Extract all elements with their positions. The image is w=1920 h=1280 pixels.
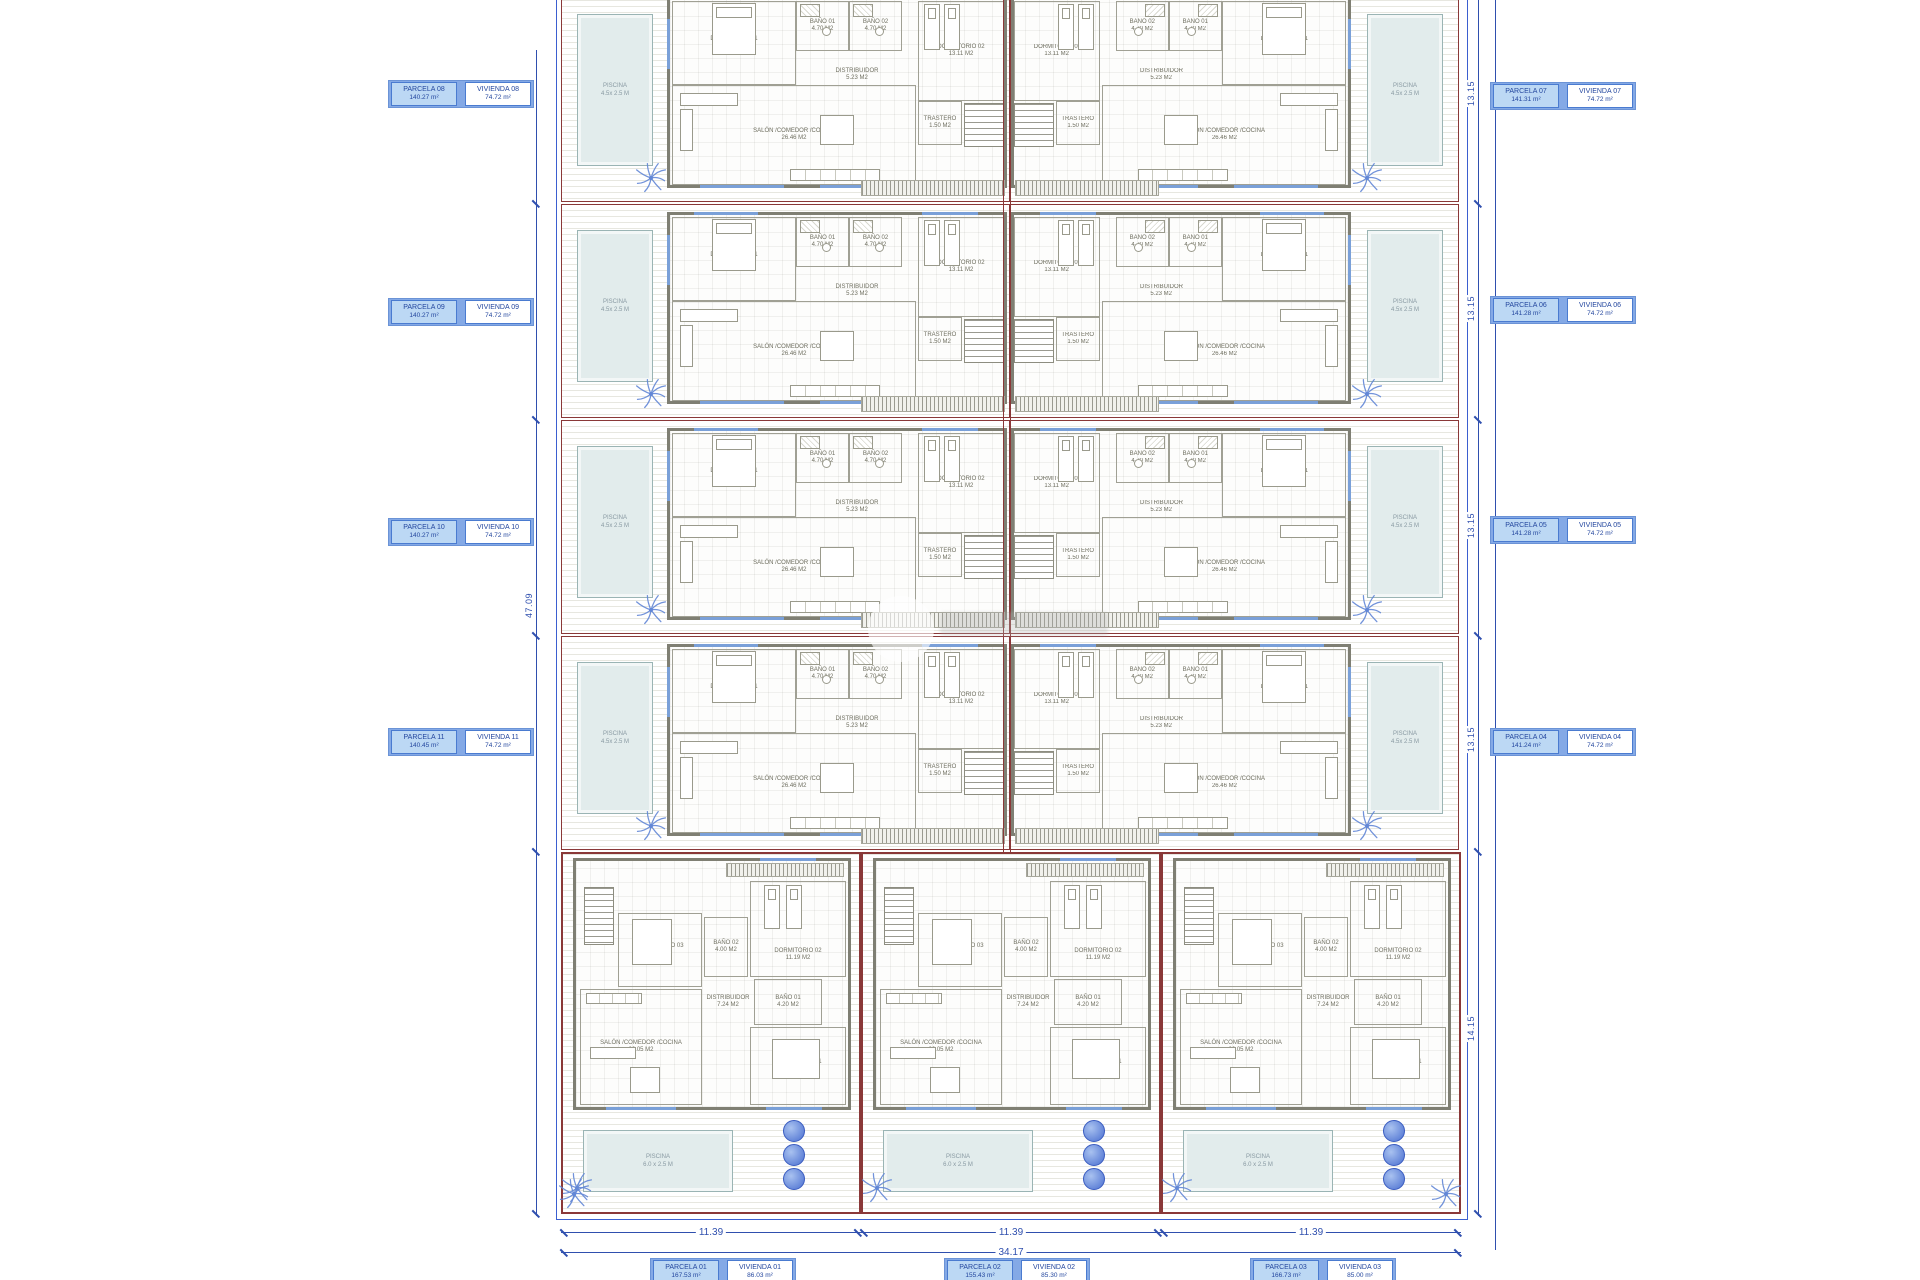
parcela-box: PARCELA 10 140.27 m² xyxy=(391,520,457,544)
room-bano-02: BAÑO 02 4.00 M2 xyxy=(1004,917,1048,977)
tree-icon xyxy=(783,1144,805,1166)
toilet xyxy=(875,459,884,468)
room-distribuidor: DISTRIBUIDOR 7.24 M2 xyxy=(1304,979,1352,1025)
parcel-label-block: PARCELA 04 141.24 m² VIVIENDA 04 74.72 m… xyxy=(1490,728,1636,756)
house-unit: DORMITORIO 01 11.72 M2 BAÑO 01 4.70 M2 B… xyxy=(1011,644,1351,836)
pool-label: PISCINA xyxy=(1246,1153,1270,1161)
pool: PISCINA 4.5x 2.5 M xyxy=(577,230,653,382)
furniture-sofa xyxy=(1325,541,1338,583)
window xyxy=(906,1107,976,1110)
window xyxy=(700,185,784,188)
dimension-label: 11.39 xyxy=(696,1227,726,1238)
window xyxy=(1066,1107,1122,1110)
room-trastero: TRASTERO 1.50 M2 xyxy=(918,101,962,145)
pool-size-label: 4.5x 2.5 M xyxy=(601,738,629,746)
room-trastero: TRASTERO 1.50 M2 xyxy=(1056,533,1100,577)
furniture-sofa xyxy=(1325,757,1338,799)
dimension-line: 11.39 xyxy=(861,1232,1161,1233)
room-bano-02: BAÑO 02 4.00 M2 xyxy=(1304,917,1348,977)
stairs xyxy=(1014,103,1054,147)
house-unit: DORMITORIO 01 11.72 M2 BAÑO 01 4.70 M2 B… xyxy=(667,428,1007,620)
furniture-bed xyxy=(1262,219,1306,271)
pool: PISCINA 6.0 x 2.5 M xyxy=(1183,1130,1333,1192)
pool-deck: PISCINA 4.5x 2.5 M xyxy=(565,0,667,198)
palm-tree-icon xyxy=(633,376,669,412)
window xyxy=(1348,451,1351,501)
furniture-sofa xyxy=(680,309,738,322)
vivienda-box: VIVIENDA 05 74.72 m² xyxy=(1567,518,1633,542)
pool-deck: PISCINA 4.5x 2.5 M xyxy=(1353,208,1455,414)
furniture-table xyxy=(1230,1067,1260,1093)
pool-size-label: 6.0 x 2.5 M xyxy=(943,1161,973,1169)
window xyxy=(760,858,816,861)
tree-icon xyxy=(1083,1120,1105,1142)
window xyxy=(1040,212,1096,215)
stairs xyxy=(964,103,1004,147)
vivienda-box: VIVIENDA 01 86.03 m² xyxy=(727,1260,793,1280)
tree-icon xyxy=(1383,1120,1405,1142)
palm-tree-icon xyxy=(1349,592,1385,628)
shower xyxy=(853,436,873,449)
dimension-label: 34.17 xyxy=(995,1247,1026,1258)
pool-label: PISCINA xyxy=(1393,298,1417,306)
furniture-bed xyxy=(1078,436,1094,482)
parcel-label-block: PARCELA 03 166.73 m² VIVIENDA 03 85.00 m… xyxy=(1250,1258,1396,1280)
tree-icon xyxy=(783,1168,805,1190)
furniture-bed xyxy=(924,652,940,698)
house-unit: DORMITORIO 01 11.72 M2 BAÑO 01 4.70 M2 B… xyxy=(1011,212,1351,404)
parcel-label-block: PARCELA 07 141.31 m² VIVIENDA 07 74.72 m… xyxy=(1490,82,1636,110)
pool-deck: PISCINA 4.5x 2.5 M xyxy=(1353,424,1455,630)
room-distribuidor: DISTRIBUIDOR 7.24 M2 xyxy=(704,979,752,1025)
parcela-box: PARCELA 02 155.43 m² xyxy=(947,1260,1013,1280)
palm-tree-icon xyxy=(633,808,669,844)
palm-tree-icon xyxy=(556,1176,592,1212)
pergola-hatch xyxy=(1026,863,1144,877)
kitchen-counter xyxy=(886,993,942,1004)
room-trastero: TRASTERO 1.50 M2 xyxy=(1056,749,1100,793)
tree-icon xyxy=(1383,1168,1405,1190)
furniture-bed xyxy=(932,919,972,965)
parcel-label-block: PARCELA 02 155.43 m² VIVIENDA 02 85.30 m… xyxy=(944,1258,1090,1280)
bottom-house-parcel: DORMITORIO 03 8.97 M2 BAÑO 02 4.00 M2 DO… xyxy=(561,852,861,1214)
parcel-label-block: PARCELA 06 141.28 m² VIVIENDA 06 74.72 m… xyxy=(1490,296,1636,324)
window xyxy=(1234,401,1318,404)
furniture-sofa xyxy=(590,1047,636,1059)
furniture-sofa xyxy=(680,525,738,538)
toilet xyxy=(822,27,831,36)
tree-icon xyxy=(1083,1168,1105,1190)
furniture-sofa xyxy=(1280,309,1338,322)
shower xyxy=(800,220,820,233)
toilet xyxy=(822,243,831,252)
window xyxy=(1040,644,1096,647)
furniture-bed xyxy=(786,885,802,929)
tree-icon xyxy=(783,1120,805,1142)
pool-deck: PISCINA 4.5x 2.5 M xyxy=(565,208,667,414)
pergola-hatch xyxy=(1015,828,1159,844)
furniture-table xyxy=(1164,763,1198,793)
vivienda-box: VIVIENDA 11 74.72 m² xyxy=(465,730,531,754)
site-plan-canvas: 13.15 13.15 13.15 13.15 14.15 47.09 PISC… xyxy=(0,0,1920,1280)
furniture-bed xyxy=(1232,919,1272,965)
pool-label: PISCINA xyxy=(603,82,627,90)
furniture-bed xyxy=(1262,651,1306,703)
furniture-table xyxy=(820,763,854,793)
furniture-table xyxy=(820,115,854,145)
room-bano-01: BAÑO 01 4.20 M2 xyxy=(1354,979,1422,1025)
toilet xyxy=(1134,243,1143,252)
furniture-bed xyxy=(944,4,960,50)
dimension-line: 11.39 xyxy=(1161,1232,1461,1233)
house-unit: DORMITORIO 01 11.72 M2 BAÑO 01 4.70 M2 B… xyxy=(667,0,1007,188)
parcel-label-block: PARCELA 05 141.28 m² VIVIENDA 05 74.72 m… xyxy=(1490,516,1636,544)
pergola-hatch xyxy=(1326,863,1444,877)
toilet xyxy=(875,27,884,36)
vivienda-box: VIVIENDA 02 85.30 m² xyxy=(1021,1260,1087,1280)
parcela-box: PARCELA 03 166.73 m² xyxy=(1253,1260,1319,1280)
pool-size-label: 4.5x 2.5 M xyxy=(601,522,629,530)
duplex-row: PISCINA 4.5x 2.5 M DORMITORIO 01 11.72 M… xyxy=(561,636,1459,850)
palm-tree-icon xyxy=(633,160,669,196)
furniture-table xyxy=(1164,331,1198,361)
furniture-bed xyxy=(632,919,672,965)
furniture-sofa xyxy=(1280,93,1338,106)
palm-tree-icon xyxy=(1159,1170,1195,1206)
pool: PISCINA 6.0 x 2.5 M xyxy=(883,1130,1033,1192)
furniture-bed xyxy=(1078,652,1094,698)
pool: PISCINA 4.5x 2.5 M xyxy=(1367,230,1443,382)
shower xyxy=(1145,652,1165,665)
house-unit: DORMITORIO 03 8.97 M2 BAÑO 02 4.00 M2 DO… xyxy=(1173,858,1451,1110)
watermark-logo xyxy=(868,596,934,662)
furniture-sofa xyxy=(890,1047,936,1059)
shower xyxy=(853,652,873,665)
furniture-bed xyxy=(764,885,780,929)
pool: PISCINA 4.5x 2.5 M xyxy=(577,14,653,166)
palm-tree-icon xyxy=(859,1170,895,1206)
parcel-label-block: PARCELA 10 140.27 m² VIVIENDA 10 74.72 m… xyxy=(388,518,534,546)
stairs xyxy=(964,751,1004,795)
furniture-sofa xyxy=(680,757,693,799)
house-unit: DORMITORIO 01 11.72 M2 BAÑO 01 4.70 M2 B… xyxy=(667,644,1007,836)
window xyxy=(1060,858,1116,861)
pool: PISCINA 4.5x 2.5 M xyxy=(1367,14,1443,166)
pool-label: PISCINA xyxy=(603,730,627,738)
shower xyxy=(1198,220,1218,233)
parcel-label-block: PARCELA 09 140.27 m² VIVIENDA 09 74.72 m… xyxy=(388,298,534,326)
furniture-bed xyxy=(1078,220,1094,266)
parcela-box: PARCELA 06 141.28 m² xyxy=(1493,298,1559,322)
window xyxy=(1366,1107,1422,1110)
pool-deck: PISCINA 6.0 x 2.5 M xyxy=(565,1112,859,1212)
tree-icon xyxy=(1383,1144,1405,1166)
pool-size-label: 4.5x 2.5 M xyxy=(1391,522,1419,530)
duplex-row: PISCINA 4.5x 2.5 M DORMITORIO 01 11.72 M… xyxy=(561,0,1459,202)
pergola-hatch xyxy=(861,180,1005,196)
window xyxy=(1360,858,1416,861)
pool-deck: PISCINA 6.0 x 2.5 M xyxy=(865,1112,1159,1212)
dimension-line: 11.39 xyxy=(561,1232,861,1233)
parcela-box: PARCELA 07 141.31 m² xyxy=(1493,84,1559,108)
furniture-bed xyxy=(712,435,756,487)
window xyxy=(694,212,758,215)
furniture-bed xyxy=(712,651,756,703)
window xyxy=(667,19,670,69)
shower xyxy=(853,220,873,233)
furniture-sofa xyxy=(680,741,738,754)
furniture-bed xyxy=(1262,3,1306,55)
parcel-label-block: PARCELA 11 140.45 m² VIVIENDA 11 74.72 m… xyxy=(388,728,534,756)
window xyxy=(766,1107,822,1110)
furniture-table xyxy=(630,1067,660,1093)
watermark-text xyxy=(940,612,1108,636)
pool-label: PISCINA xyxy=(946,1153,970,1161)
room-trastero: TRASTERO 1.50 M2 xyxy=(918,749,962,793)
stairs xyxy=(1014,319,1054,363)
furniture-sofa xyxy=(680,93,738,106)
vivienda-box: VIVIENDA 03 85.00 m² xyxy=(1327,1260,1393,1280)
furniture-table xyxy=(820,331,854,361)
pool-size-label: 4.5x 2.5 M xyxy=(1391,90,1419,98)
window xyxy=(1348,235,1351,285)
window xyxy=(1234,185,1318,188)
shower xyxy=(1145,220,1165,233)
pool-label: PISCINA xyxy=(603,514,627,522)
parcela-box: PARCELA 09 140.27 m² xyxy=(391,300,457,324)
window xyxy=(700,833,784,836)
parcela-box: PARCELA 01 167.53 m² xyxy=(653,1260,719,1280)
window xyxy=(694,428,758,431)
furniture-bed xyxy=(944,652,960,698)
room-bano-01: BAÑO 01 4.20 M2 xyxy=(1054,979,1122,1025)
house-unit: DORMITORIO 01 11.72 M2 BAÑO 01 4.70 M2 B… xyxy=(667,212,1007,404)
pool-label: PISCINA xyxy=(646,1153,670,1161)
vivienda-box: VIVIENDA 07 74.72 m² xyxy=(1567,84,1633,108)
stairs xyxy=(964,535,1004,579)
toilet xyxy=(822,459,831,468)
furniture-bed xyxy=(1058,652,1074,698)
dimension-label: 11.39 xyxy=(996,1227,1026,1238)
house-unit: DORMITORIO 03 8.97 M2 BAÑO 02 4.00 M2 DO… xyxy=(573,858,851,1110)
bottom-house-parcel: DORMITORIO 03 8.97 M2 BAÑO 02 4.00 M2 DO… xyxy=(1161,852,1461,1214)
duplex-row: PISCINA 4.5x 2.5 M DORMITORIO 01 11.72 M… xyxy=(561,420,1459,634)
palm-tree-icon xyxy=(1349,376,1385,412)
window xyxy=(922,212,978,215)
pool-deck: PISCINA 6.0 x 2.5 M xyxy=(1165,1112,1459,1212)
window xyxy=(1260,644,1324,647)
furniture-bed xyxy=(712,219,756,271)
window xyxy=(1040,428,1096,431)
pool-deck: PISCINA 4.5x 2.5 M xyxy=(1353,0,1455,198)
furniture-bed xyxy=(1364,885,1380,929)
vivienda-box: VIVIENDA 10 74.72 m² xyxy=(465,520,531,544)
furniture-sofa xyxy=(1190,1047,1236,1059)
pool: PISCINA 4.5x 2.5 M xyxy=(577,446,653,598)
duplex-row: PISCINA 4.5x 2.5 M DORMITORIO 01 11.72 M… xyxy=(561,204,1459,418)
pool-size-label: 4.5x 2.5 M xyxy=(1391,306,1419,314)
vivienda-area: 74.72 m² xyxy=(485,94,511,102)
pool-size-label: 4.5x 2.5 M xyxy=(601,90,629,98)
toilet xyxy=(1134,27,1143,36)
window xyxy=(1234,617,1318,620)
stairs xyxy=(964,319,1004,363)
window xyxy=(1206,1107,1276,1110)
toilet xyxy=(875,243,884,252)
furniture-table xyxy=(1164,115,1198,145)
window xyxy=(667,451,670,501)
furniture-bed xyxy=(1058,4,1074,50)
shower xyxy=(853,4,873,17)
furniture-sofa xyxy=(680,109,693,151)
room-bano-01: BAÑO 01 4.20 M2 xyxy=(754,979,822,1025)
pool-size-label: 4.5x 2.5 M xyxy=(1391,738,1419,746)
palm-tree-icon xyxy=(1428,1176,1464,1212)
parcela-box: PARCELA 08 140.27 m² xyxy=(391,82,457,106)
room-bano-02: BAÑO 02 4.00 M2 xyxy=(704,917,748,977)
pool-deck: PISCINA 4.5x 2.5 M xyxy=(565,640,667,846)
furniture-table xyxy=(1164,547,1198,577)
vivienda-box: VIVIENDA 08 74.72 m² xyxy=(465,82,531,106)
furniture-bed xyxy=(1086,885,1102,929)
kitchen-counter xyxy=(1186,993,1242,1004)
window xyxy=(922,644,978,647)
palm-tree-icon xyxy=(1349,160,1385,196)
furniture-bed xyxy=(1072,1039,1120,1079)
shower xyxy=(1198,652,1218,665)
parcela-box: PARCELA 05 141.28 m² xyxy=(1493,518,1559,542)
plan-area: PISCINA 4.5x 2.5 M DORMITORIO 01 11.72 M… xyxy=(0,0,1920,1280)
vivienda-box: VIVIENDA 09 74.72 m² xyxy=(465,300,531,324)
kitchen-counter xyxy=(586,993,642,1004)
stairs xyxy=(1014,535,1054,579)
window xyxy=(667,235,670,285)
window xyxy=(1234,833,1318,836)
furniture-sofa xyxy=(1280,741,1338,754)
furniture-table xyxy=(820,547,854,577)
shower xyxy=(800,652,820,665)
furniture-bed xyxy=(1058,436,1074,482)
window xyxy=(667,667,670,717)
stairs xyxy=(884,887,914,945)
pergola-hatch xyxy=(1015,396,1159,412)
house-unit: DORMITORIO 03 8.97 M2 BAÑO 02 4.00 M2 DO… xyxy=(873,858,1151,1110)
furniture-bed xyxy=(944,436,960,482)
window xyxy=(1260,428,1324,431)
window xyxy=(700,401,784,404)
parcel-label-block: PARCELA 01 167.53 m² VIVIENDA 01 86.03 m… xyxy=(650,1258,796,1280)
furniture-bed xyxy=(924,220,940,266)
pool-deck: PISCINA 4.5x 2.5 M xyxy=(1353,640,1455,846)
furniture-bed xyxy=(924,4,940,50)
room-trastero: TRASTERO 1.50 M2 xyxy=(1056,317,1100,361)
parcela-number: PARCELA 08 xyxy=(403,86,445,95)
room-trastero: TRASTERO 1.50 M2 xyxy=(1056,101,1100,145)
room-trastero: TRASTERO 1.50 M2 xyxy=(918,533,962,577)
window xyxy=(1348,667,1351,717)
pool-label: PISCINA xyxy=(603,298,627,306)
shower xyxy=(800,4,820,17)
vivienda-number: VIVIENDA 08 xyxy=(477,86,519,95)
furniture-bed xyxy=(1078,4,1094,50)
dimension-line: 34.17 xyxy=(561,1252,1461,1253)
shower xyxy=(1145,436,1165,449)
furniture-sofa xyxy=(1325,325,1338,367)
parcel-label-block: PARCELA 08 140.27 m² VIVIENDA 08 74.72 m… xyxy=(388,80,534,108)
window xyxy=(700,617,784,620)
pool: PISCINA 4.5x 2.5 M xyxy=(1367,662,1443,814)
pergola-hatch xyxy=(1015,180,1159,196)
furniture-bed xyxy=(1064,885,1080,929)
parcela-box: PARCELA 11 140.45 m² xyxy=(391,730,457,754)
parcela-box: PARCELA 04 141.24 m² xyxy=(1493,730,1559,754)
furniture-bed xyxy=(1262,435,1306,487)
pool-label: PISCINA xyxy=(1393,82,1417,90)
parcela-area: 140.27 m² xyxy=(409,94,438,102)
furniture-bed xyxy=(1386,885,1402,929)
stairs xyxy=(1014,751,1054,795)
shower xyxy=(1198,436,1218,449)
palm-tree-icon xyxy=(633,592,669,628)
shower xyxy=(1145,4,1165,17)
pool: PISCINA 4.5x 2.5 M xyxy=(1367,446,1443,598)
furniture-bed xyxy=(1058,220,1074,266)
furniture-bed xyxy=(944,220,960,266)
pergola-hatch xyxy=(861,396,1005,412)
pool-size-label: 6.0 x 2.5 M xyxy=(643,1161,673,1169)
toilet xyxy=(1134,459,1143,468)
toilet xyxy=(875,675,884,684)
furniture-bed xyxy=(712,3,756,55)
toilet xyxy=(1187,27,1196,36)
toilet xyxy=(1187,243,1196,252)
pool-size-label: 4.5x 2.5 M xyxy=(601,306,629,314)
window xyxy=(1348,19,1351,69)
pool-size-label: 6.0 x 2.5 M xyxy=(1243,1161,1273,1169)
pool-label: PISCINA xyxy=(1393,730,1417,738)
furniture-sofa xyxy=(680,325,693,367)
window xyxy=(606,1107,676,1110)
palm-tree-icon xyxy=(1349,808,1385,844)
furniture-table xyxy=(930,1067,960,1093)
toilet xyxy=(1187,675,1196,684)
pool: PISCINA 6.0 x 2.5 M xyxy=(583,1130,733,1192)
toilet xyxy=(1187,459,1196,468)
pool: PISCINA 4.5x 2.5 M xyxy=(577,662,653,814)
tree-icon xyxy=(1083,1144,1105,1166)
stairs xyxy=(584,887,614,945)
window xyxy=(1260,212,1324,215)
vivienda-box: VIVIENDA 06 74.72 m² xyxy=(1567,298,1633,322)
room-distribuidor: DISTRIBUIDOR 7.24 M2 xyxy=(1004,979,1052,1025)
dimension-label: 11.39 xyxy=(1296,1227,1326,1238)
window xyxy=(922,428,978,431)
furniture-bed xyxy=(1372,1039,1420,1079)
house-unit: DORMITORIO 01 11.72 M2 BAÑO 01 4.70 M2 B… xyxy=(1011,428,1351,620)
window xyxy=(694,644,758,647)
furniture-sofa xyxy=(680,541,693,583)
furniture-sofa xyxy=(1325,109,1338,151)
furniture-bed xyxy=(924,436,940,482)
shower xyxy=(1198,4,1218,17)
house-unit: DORMITORIO 01 11.72 M2 BAÑO 01 4.70 M2 B… xyxy=(1011,0,1351,188)
pool-deck: PISCINA 4.5x 2.5 M xyxy=(565,424,667,630)
room-trastero: TRASTERO 1.50 M2 xyxy=(918,317,962,361)
pergola-hatch xyxy=(861,828,1005,844)
pool-label: PISCINA xyxy=(1393,514,1417,522)
stairs xyxy=(1184,887,1214,945)
vivienda-box: VIVIENDA 04 74.72 m² xyxy=(1567,730,1633,754)
